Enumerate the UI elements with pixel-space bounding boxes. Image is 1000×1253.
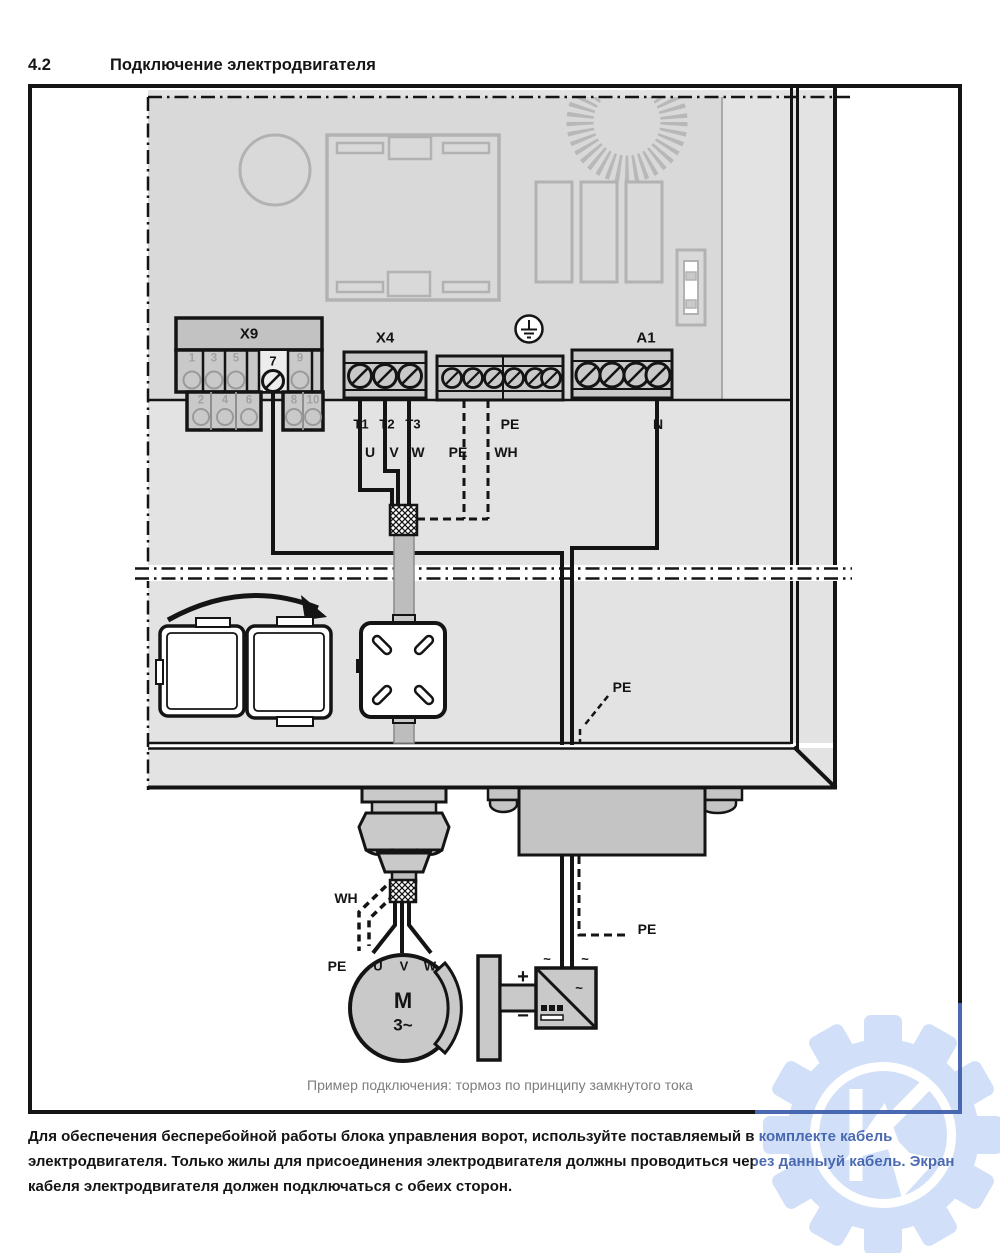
label-x9: X9: [240, 327, 258, 342]
terminal-block-a1: [572, 350, 672, 398]
label-wh-wire: WH: [494, 445, 517, 459]
cable-gland: [359, 788, 449, 882]
terminal-block-x4: [344, 352, 426, 398]
rectifier-plus: +: [517, 967, 529, 987]
x9-pin-1: 1: [189, 353, 195, 365]
rectifier-ac-left: ~: [543, 953, 551, 966]
shield-clamp-top: [390, 505, 417, 535]
shield-clamp-bottom: [390, 880, 416, 902]
label-pe-out: PE: [638, 922, 657, 936]
note-paragraph: Для обеспечения бесперебойной работы бло…: [28, 1124, 970, 1199]
x9-pin-7: 7: [269, 355, 276, 368]
motor-terminal-v: V: [400, 960, 409, 973]
motor-phase: 3~: [393, 1017, 412, 1034]
brake-plate: [478, 956, 500, 1060]
x9-pin-4: 4: [222, 395, 228, 407]
label-u: U: [365, 445, 375, 459]
shield-clamp-housing: [361, 615, 445, 723]
label-t1: T1: [353, 418, 368, 431]
x9-pin-2: 2: [198, 395, 204, 407]
x9-pin-9: 9: [297, 353, 303, 365]
label-n: N: [653, 417, 663, 431]
break-band: [135, 565, 852, 581]
label-v: V: [389, 445, 398, 459]
x9-pin-8: 8: [291, 395, 297, 407]
x9-pin-3: 3: [211, 353, 217, 365]
motor-terminal-w: W: [424, 960, 436, 973]
rectifier-ac-right: ~: [581, 953, 589, 966]
terminal-block-pe: [437, 356, 563, 400]
label-a1: A1: [636, 331, 655, 346]
label-pe-mid: PE: [613, 680, 632, 694]
wiring-diagram: [0, 0, 1000, 1250]
brake-rectifier: [536, 968, 596, 1028]
manual-page: { "header": { "section": "4.2", "title":…: [0, 0, 1000, 1250]
label-pe-motor: PE: [328, 959, 347, 973]
label-t3: T3: [405, 418, 420, 431]
x9-pin-10: 10: [307, 395, 320, 407]
motor-m: M: [394, 990, 412, 1012]
earth-symbol: [516, 316, 543, 343]
label-x4: X4: [376, 331, 394, 346]
label-wh-motor: WH: [334, 891, 357, 905]
motor-wires: [373, 902, 431, 953]
label-t2: T2: [379, 418, 394, 431]
x9-pin-5: 5: [233, 353, 239, 365]
label-pe-wire: PE: [449, 445, 468, 459]
rectifier-minus: −: [517, 1006, 529, 1026]
label-pe-top: PE: [501, 417, 520, 431]
label-w: W: [411, 445, 424, 459]
wire-pe-below: [579, 856, 628, 935]
motor-mount-block: [488, 788, 742, 855]
motor-terminal-u: U: [373, 960, 382, 973]
x9-pin-6: 6: [246, 395, 252, 407]
figure-caption: Пример подключения: тормоз по принципу з…: [200, 1077, 800, 1093]
rectifier-ac-inner: ~: [575, 982, 583, 995]
